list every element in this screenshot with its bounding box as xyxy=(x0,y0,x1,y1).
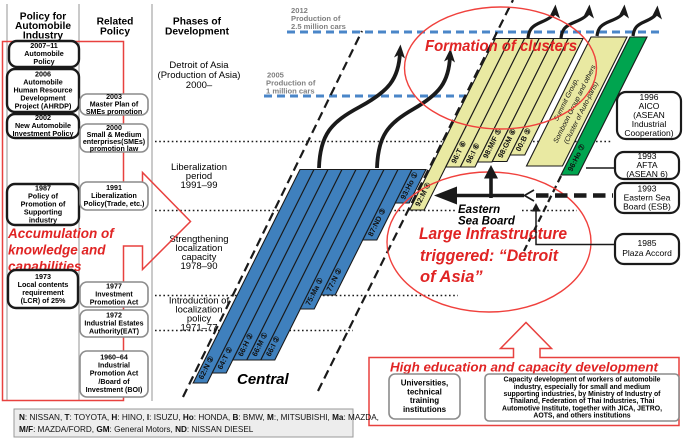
svg-text:Central: Central xyxy=(237,371,290,388)
svg-text:Formation of clusters: Formation of clusters xyxy=(425,38,577,55)
svg-text:Policy forAutomobileIndustry: Policy forAutomobileIndustry xyxy=(15,12,71,42)
svg-text:High education and capacity de: High education and capacity development xyxy=(390,360,659,375)
svg-text:Phases ofDevelopment: Phases ofDevelopment xyxy=(165,17,230,38)
svg-text:Universities,technicaltraining: Universities,technicaltraininginstitutio… xyxy=(401,379,449,414)
svg-text:RelatedPolicy: RelatedPolicy xyxy=(97,17,134,38)
